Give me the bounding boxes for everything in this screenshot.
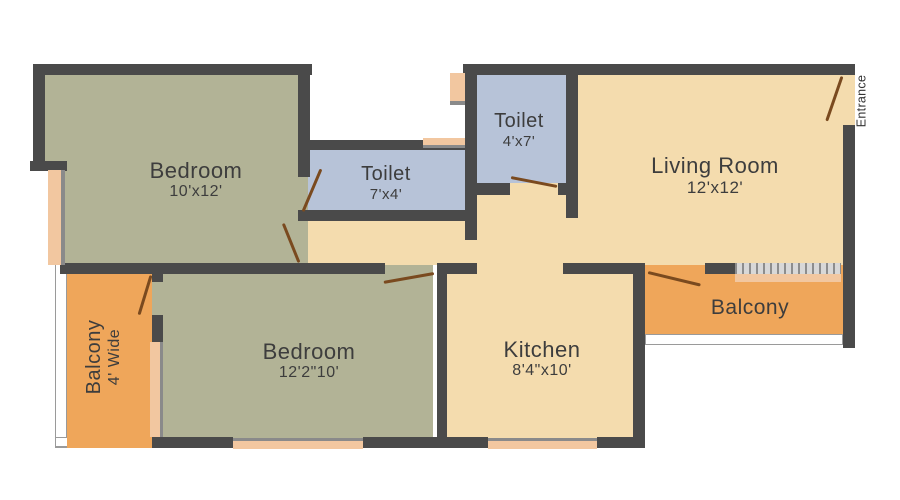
balcony-left-railing: [55, 264, 67, 448]
wall-balcony-right-stub: [705, 263, 735, 274]
wall-bedroom2-bottom-left: [152, 437, 233, 448]
entrance-label: Entrance: [855, 54, 873, 149]
toilet-2-window: [450, 73, 465, 105]
living-room-balcony-window: [735, 263, 841, 274]
kitchen-window: [488, 438, 597, 449]
living-room-label: Living Room 12'x12': [615, 153, 815, 198]
balcony-left-label: Balcony 4' Wide: [83, 277, 141, 437]
toilet-2-name: Toilet: [459, 110, 579, 133]
bedroom-2-size: 12'2"10': [209, 364, 409, 382]
balcony-left-size: 4' Wide: [106, 277, 124, 437]
toilet-1-label: Toilet 7'x4': [316, 163, 456, 203]
wall-left-upper: [33, 64, 45, 171]
living-room-name: Living Room: [615, 153, 815, 178]
kitchen-size: 8'4"x10': [442, 362, 642, 380]
wall-toilet1-bottom: [298, 210, 477, 221]
hall-passage-floor: [477, 183, 567, 265]
bedroom-2-name: Bedroom: [209, 339, 409, 364]
bedroom-2-label: Bedroom 12'2"10': [209, 339, 409, 383]
toilet-1-name: Toilet: [316, 163, 456, 186]
balcony-right-label: Balcony: [650, 296, 850, 320]
wall-middle-left: [60, 263, 385, 274]
bedroom-1-size: 10'x12': [96, 183, 296, 201]
toilet-2-size: 4'x7': [459, 133, 579, 150]
hall-floor: [308, 221, 477, 265]
bedroom-1-label: Bedroom 10'x12': [96, 158, 296, 202]
wall-kitchen-bottom-right: [597, 437, 644, 448]
kitchen-label: Kitchen 8'4"x10': [442, 337, 642, 381]
balcony-right-name: Balcony: [650, 296, 850, 320]
wall-toilet2-bottom-left: [477, 183, 510, 195]
wall-top-left: [33, 64, 312, 75]
living-room-size: 12'x12': [615, 178, 815, 198]
bedroom-1-floor-notch: [45, 75, 65, 165]
balcony-right-railing: [645, 334, 843, 345]
wall-bedroom1-right: [298, 64, 310, 177]
wall-balcony-left-stub: [152, 315, 163, 342]
toilet-1-size: 7'x4': [316, 186, 456, 203]
bedroom-2-window: [233, 438, 363, 449]
balcony-left-name: Balcony: [83, 277, 106, 437]
floor-plan: Bedroom 10'x12' Toilet 7'x4' Toilet 4'x7…: [0, 0, 900, 500]
wall-toilets-shared: [465, 73, 477, 240]
door-pivot-balcony-left: [152, 274, 163, 282]
living-room-balcony-window-sill: [735, 274, 841, 282]
wall-top-right: [463, 64, 855, 75]
bedroom-1-window: [48, 170, 65, 265]
wall-bedroom2-kitchen-bottom: [363, 437, 488, 448]
bedroom-1-name: Bedroom: [96, 158, 296, 183]
kitchen-name: Kitchen: [442, 337, 642, 362]
bedroom-2-balcony-window: [150, 342, 163, 437]
toilet-2-label: Toilet 4'x7': [459, 110, 579, 150]
